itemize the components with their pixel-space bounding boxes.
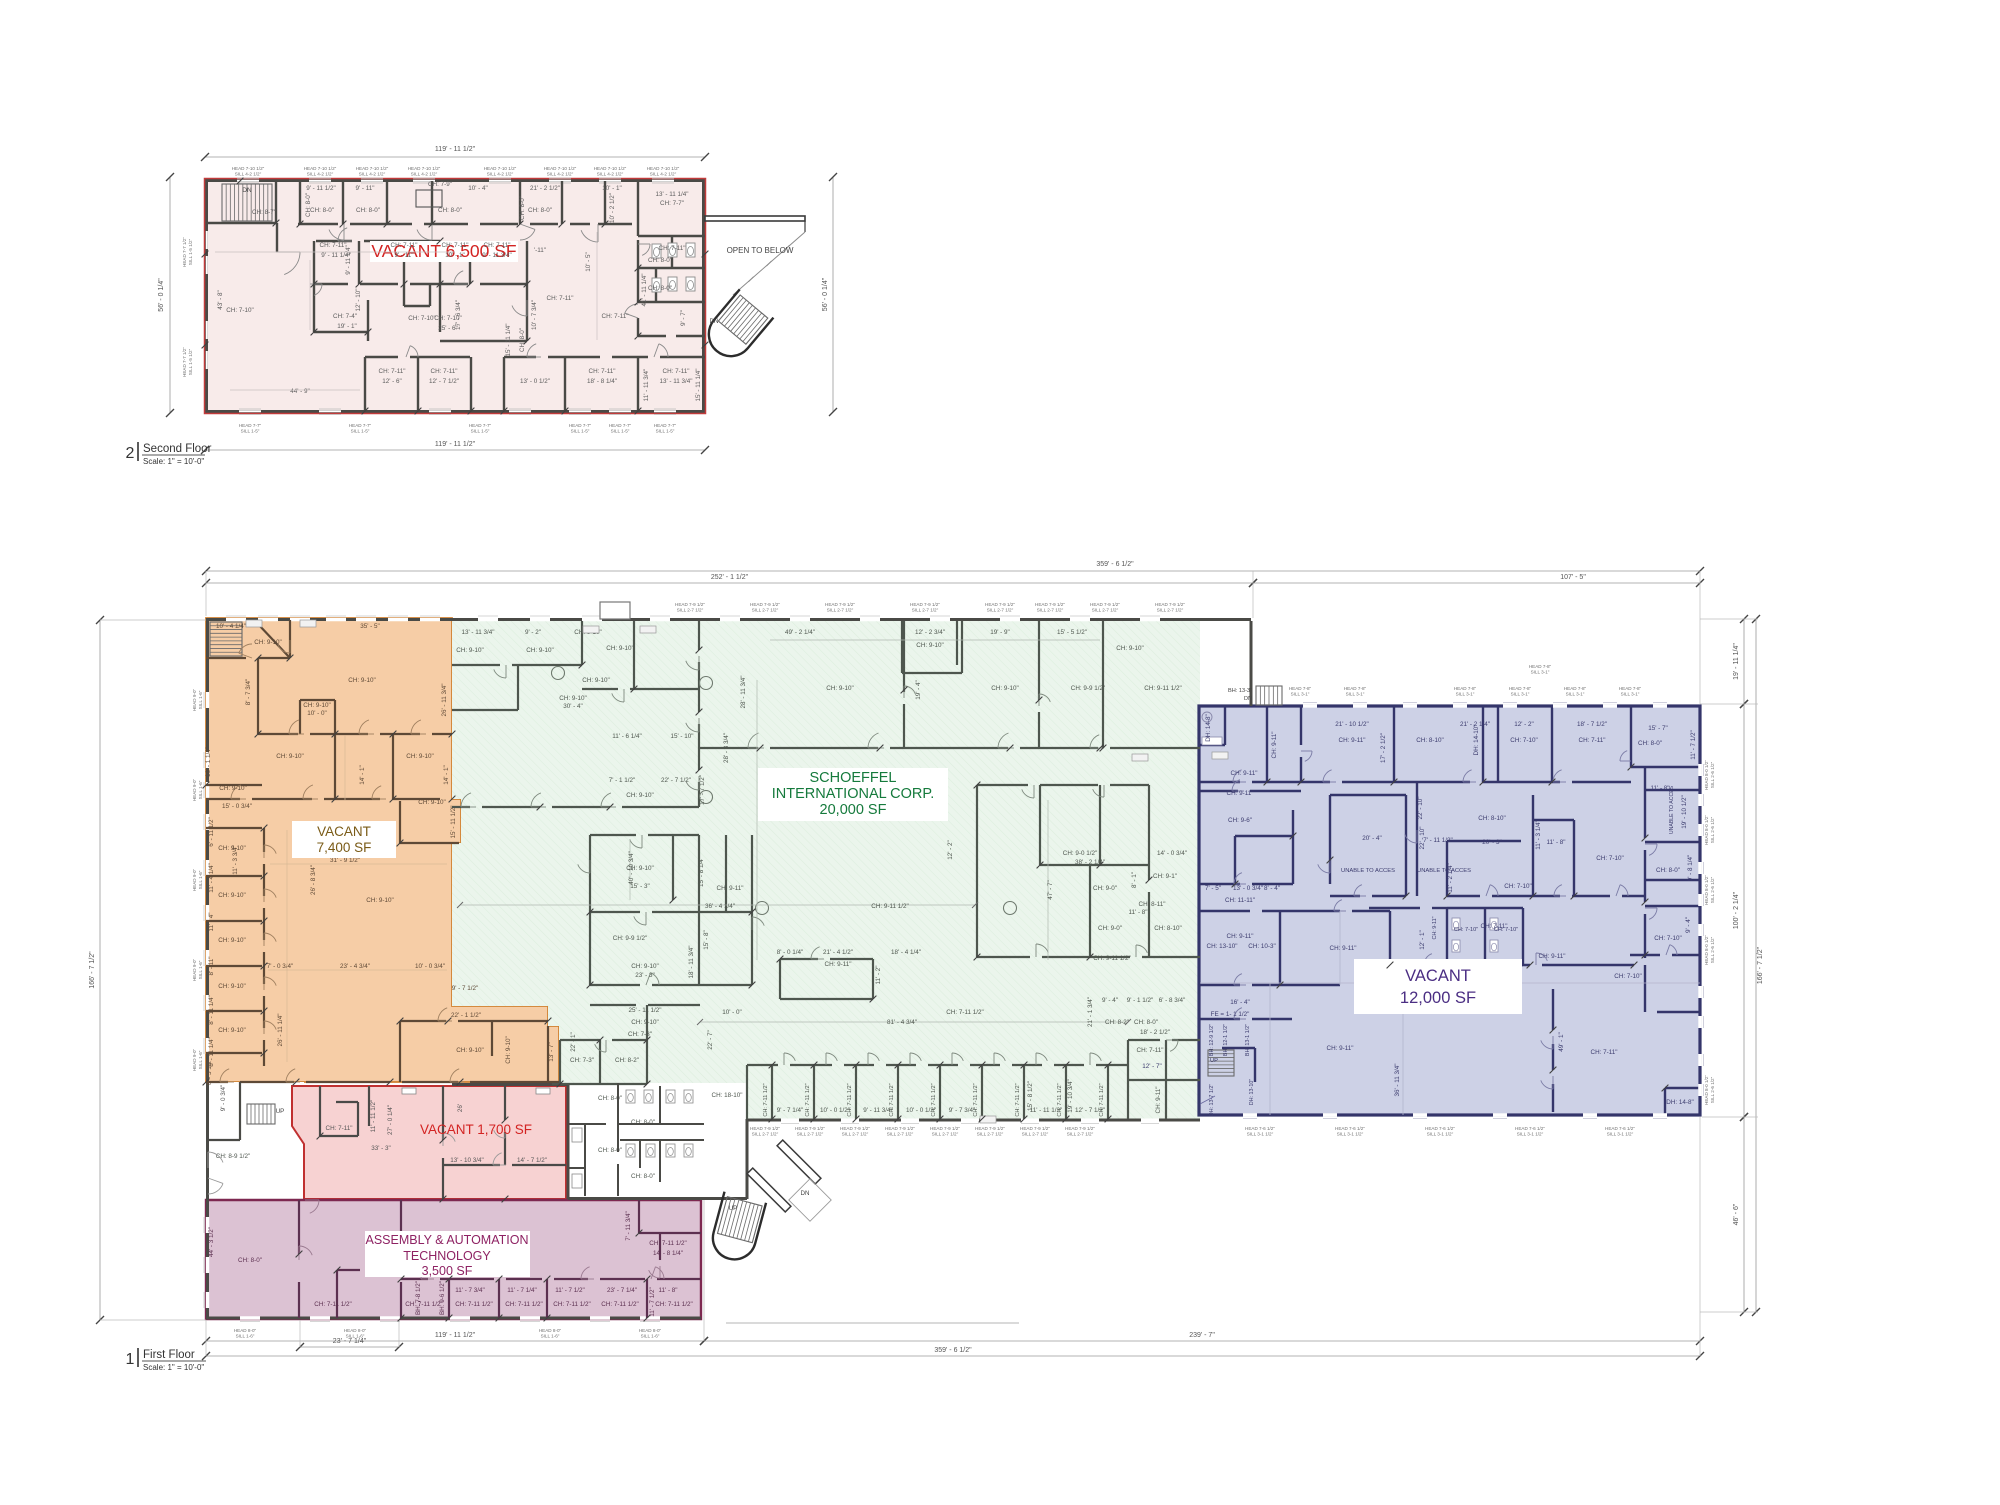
svg-text:9' - 2": 9' - 2" (525, 629, 541, 636)
svg-text:HEAD 7-6 1/2": HEAD 7-6 1/2" (1335, 1126, 1365, 1131)
svg-text:11' - 7 1/2": 11' - 7 1/2" (649, 1287, 656, 1317)
svg-text:DH: 14-8": DH: 14-8" (1205, 714, 1212, 741)
svg-text:15' - 11 1/4": 15' - 11 1/4" (695, 368, 702, 401)
svg-text:CH: 7-11 1/2": CH: 7-11 1/2" (847, 1083, 853, 1116)
svg-text:CH: 7-10": CH: 7-10" (1494, 927, 1518, 933)
svg-text:7' - 5": 7' - 5" (1205, 885, 1221, 892)
svg-text:CH: 7-11 1/2": CH: 7-11 1/2" (655, 1301, 692, 1308)
svg-text:8' - 7 3/4": 8' - 7 3/4" (245, 679, 252, 706)
svg-text:17' - 2 1/2": 17' - 2 1/2" (1380, 733, 1387, 763)
svg-text:UP: UP (1210, 1058, 1218, 1064)
svg-text:SILL 2-7 1/2": SILL 2-7 1/2" (987, 607, 1014, 612)
svg-text:14' - 1": 14' - 1" (443, 765, 450, 785)
svg-text:36' - 11 3/4": 36' - 11 3/4" (1394, 1063, 1401, 1096)
svg-text:BH: 13-3": BH: 13-3" (1228, 688, 1252, 694)
svg-text:SILL 3-1": SILL 3-1" (1531, 669, 1550, 674)
svg-text:SILL 3-1": SILL 3-1" (1291, 691, 1310, 696)
svg-text:HEAD 7-10 1/2": HEAD 7-10 1/2" (356, 166, 389, 171)
svg-text:CH: 9-11": CH: 9-11" (1539, 953, 1566, 960)
svg-text:HEAD 7-9 1/2": HEAD 7-9 1/2" (825, 602, 855, 607)
svg-text:8' - 11 1/4": 8' - 11 1/4" (208, 995, 215, 1025)
svg-text:DN: DN (1244, 696, 1252, 702)
svg-text:13' - 0 3/4": 13' - 0 3/4" (1233, 885, 1263, 892)
svg-text:359' - 6 1/2": 359' - 6 1/2" (934, 1347, 972, 1354)
svg-text:30' - 4": 30' - 4" (563, 703, 583, 710)
svg-text:11' - 8": 11' - 8" (658, 1287, 677, 1294)
svg-text:44' - 9": 44' - 9" (290, 388, 310, 395)
svg-text:HEAD 9-0": HEAD 9-0" (192, 958, 197, 981)
svg-text:10' - 4": 10' - 4" (468, 185, 488, 192)
svg-text:14' - 0 3/4": 14' - 0 3/4" (1157, 850, 1187, 857)
svg-text:9' - 11": 9' - 11" (355, 185, 374, 192)
svg-text:49' - 1": 49' - 1" (1558, 1032, 1565, 1052)
svg-text:CH: 9-11": CH: 9-11" (1330, 945, 1357, 952)
svg-text:CH: 9-10": CH: 9-10" (218, 892, 245, 899)
svg-text:SILL 1-5": SILL 1-5" (351, 428, 370, 433)
svg-text:DH: 14-8": DH: 14-8" (1666, 1099, 1693, 1106)
svg-text:CH: 7-11 1/2": CH: 7-11 1/2" (405, 1301, 442, 1308)
svg-text:SCHOEFFEL: SCHOEFFEL (809, 770, 896, 786)
svg-text:239' - 7": 239' - 7" (1189, 1332, 1215, 1339)
svg-text:CH: 9-11": CH: 9-11" (1231, 770, 1258, 777)
svg-text:8' - 4": 8' - 4" (1264, 885, 1280, 892)
svg-text:166' - 7 1/2": 166' - 7 1/2" (1757, 946, 1764, 984)
svg-text:12' - 2 3/4": 12' - 2 3/4" (915, 629, 945, 636)
svg-text:HEAD 7-9 1/2": HEAD 7-9 1/2" (885, 1126, 915, 1131)
svg-text:SILL 2-7 1/2": SILL 2-7 1/2" (752, 1131, 779, 1136)
svg-text:CH: 8-0": CH: 8-0" (648, 285, 672, 292)
svg-text:23' - 3": 23' - 3" (635, 972, 655, 979)
svg-text:CH: 7-11": CH: 7-11" (431, 368, 458, 375)
svg-text:17' - 6 3/4": 17' - 6 3/4" (455, 300, 462, 330)
svg-text:15' - 0 3/4": 15' - 0 3/4" (222, 803, 252, 810)
svg-text:17' - 7 1/2": 17' - 7 1/2" (699, 775, 706, 805)
svg-text:SILL 1-5": SILL 1-5" (656, 428, 675, 433)
svg-text:BH: 9-6 1/2": BH: 9-6 1/2" (439, 1281, 446, 1315)
svg-text:SILL 1-5": SILL 1-5" (571, 428, 590, 433)
svg-text:CH: 7-11 1/2": CH: 7-11 1/2" (553, 1301, 590, 1308)
svg-text:HEAD 9-0": HEAD 9-0" (192, 778, 197, 801)
svg-text:VACANT: VACANT (1405, 967, 1471, 985)
svg-text:12' - 2": 12' - 2" (1514, 721, 1534, 728)
svg-text:11' - 11 3/4": 11' - 11 3/4" (643, 369, 650, 402)
svg-text:CH: 9-10": CH: 9-10" (276, 753, 303, 760)
svg-text:CH: 11-11": CH: 11-11" (1225, 897, 1255, 904)
svg-text:CH: 9-0 1/2": CH: 9-0 1/2" (1063, 850, 1097, 857)
svg-text:CH: 8-0": CH: 8-0" (528, 207, 552, 214)
svg-text:CH: 7-11 1/2": CH: 7-11 1/2" (763, 1083, 769, 1116)
svg-text:DH: 13-7 1/2": DH: 13-7 1/2" (1209, 1084, 1215, 1117)
svg-text:20,000 SF: 20,000 SF (820, 802, 887, 818)
svg-text:HEAD 7-9 1/2": HEAD 7-9 1/2" (1065, 1126, 1095, 1131)
svg-text:41' - 11 1/4": 41' - 11 1/4" (641, 273, 648, 306)
svg-text:6' - 8 3/4": 6' - 8 3/4" (1159, 997, 1186, 1004)
svg-text:SILL 1-5": SILL 1-5" (611, 428, 630, 433)
svg-text:CH: 7-11 1/2": CH: 7-11 1/2" (973, 1083, 979, 1116)
svg-text:8' - 0 1/4": 8' - 0 1/4" (777, 949, 804, 956)
svg-text:7' - 0 3/4": 7' - 0 3/4" (267, 963, 294, 970)
svg-text:HEAD 7-8": HEAD 7-8" (1529, 664, 1552, 669)
svg-text:HEAD 7-9 1/2": HEAD 7-9 1/2" (750, 602, 780, 607)
svg-text:SILL 2-7 1/2": SILL 2-7 1/2" (977, 1131, 1004, 1136)
svg-text:7' - 11 3/4": 7' - 11 3/4" (625, 1211, 632, 1241)
svg-text:10' - 0": 10' - 0" (722, 1009, 742, 1016)
svg-text:HEAD 7-9 1/2": HEAD 7-9 1/2" (975, 1126, 1005, 1131)
svg-text:CH: 7-11": CH: 7-11" (659, 245, 686, 252)
svg-text:CH: 7-11": CH: 7-11" (547, 295, 574, 302)
svg-text:CH: 7-11": CH: 7-11" (589, 368, 616, 375)
svg-text:CH: 8-0": CH: 8-0" (438, 207, 462, 214)
svg-text:11' - 7 1/2": 11' - 7 1/2" (555, 1287, 585, 1294)
svg-text:SILL 4-2 1/2": SILL 4-2 1/2" (307, 171, 334, 176)
svg-text:HEAD 7-7": HEAD 7-7" (609, 423, 632, 428)
svg-text:CH: 9-10": CH: 9-10" (218, 983, 245, 990)
svg-text:15' - 5 1/2": 15' - 5 1/2" (1057, 629, 1087, 636)
svg-text:15' - 8": 15' - 8" (703, 930, 710, 950)
svg-text:HEAD 7-7": HEAD 7-7" (569, 423, 592, 428)
svg-text:SILL 1-6": SILL 1-6" (641, 1333, 660, 1338)
svg-text:CH: 8-0": CH: 8-0" (648, 257, 672, 264)
svg-text:HEAD 7-8": HEAD 7-8" (1619, 686, 1642, 691)
svg-text:18' - 2 1/2": 18' - 2 1/2" (1140, 1029, 1170, 1036)
svg-text:13' - 11 3/4": 13' - 11 3/4" (461, 629, 494, 636)
svg-text:10' - 0 1/2": 10' - 0 1/2" (820, 1107, 850, 1114)
svg-text:UNABLE TO ACCES: UNABLE TO ACCES (1341, 868, 1395, 874)
svg-text:CH: 7-7": CH: 7-7" (660, 200, 684, 207)
svg-text:CH: 7-10": CH: 7-10" (1504, 883, 1531, 890)
svg-text:SILL 2-7 1/2": SILL 2-7 1/2" (797, 1131, 824, 1136)
svg-text:HEAD 7-10 1/2": HEAD 7-10 1/2" (544, 166, 577, 171)
svg-text:Scale: 1" = 10'-0": Scale: 1" = 10'-0" (143, 457, 204, 466)
svg-text:33' - 3": 33' - 3" (371, 1145, 391, 1152)
svg-text:CH: 9-11": CH: 9-11" (1432, 916, 1438, 939)
svg-text:CH: 8-0": CH: 8-0" (356, 207, 380, 214)
svg-text:11' - 3 3/4": 11' - 3 3/4" (232, 845, 239, 875)
svg-text:23' - 7 1/4": 23' - 7 1/4" (333, 1338, 367, 1345)
svg-text:11' - 4": 11' - 4" (208, 912, 215, 931)
svg-text:CH: 8-0": CH: 8-0" (305, 193, 312, 217)
svg-text:CH: 8-11": CH: 8-11" (1139, 901, 1166, 908)
svg-text:12' - 10": 12' - 10" (355, 288, 362, 311)
svg-text:10' - 0 3/4": 10' - 0 3/4" (415, 963, 445, 970)
svg-text:CH: 18-10": CH: 18-10" (712, 1092, 743, 1099)
svg-text:'-11": '-11" (534, 247, 546, 254)
svg-text:7' - 11 1/2": 7' - 11 1/2" (1423, 837, 1453, 844)
svg-text:UP: UP (276, 1108, 285, 1115)
svg-text:27' - 0 1/4": 27' - 0 1/4" (387, 1105, 394, 1135)
svg-text:CH: 9-10": CH: 9-10" (626, 792, 653, 799)
svg-text:HEAD 9-0": HEAD 9-0" (192, 688, 197, 711)
svg-text:FE = 1- 1 1/2": FE = 1- 1 1/2" (1211, 1011, 1250, 1018)
svg-text:BH: 7-8 1/2": BH: 7-8 1/2" (415, 1281, 422, 1315)
svg-text:CH: 8-10": CH: 8-10" (1478, 815, 1505, 822)
svg-text:CH: 7-3": CH: 7-3" (570, 1057, 594, 1064)
svg-text:19' - 1": 19' - 1" (337, 323, 357, 330)
svg-text:14' - 1": 14' - 1" (359, 765, 366, 785)
svg-text:SILL 1-6": SILL 1-6" (236, 1333, 255, 1338)
svg-text:HEAD 7-7 1/2": HEAD 7-7 1/2" (182, 347, 187, 377)
svg-text:HEAD 8-0 1/2": HEAD 8-0 1/2" (1704, 935, 1709, 965)
svg-text:First Floor: First Floor (143, 1349, 195, 1361)
svg-text:HEAD 7-9 1/2": HEAD 7-9 1/2" (840, 1126, 870, 1131)
svg-text:22' - 1 1/2": 22' - 1 1/2" (451, 1012, 481, 1019)
svg-text:CH: 7-10": CH: 7-10" (226, 307, 253, 314)
svg-text:11' - 7 3/4": 11' - 7 3/4" (455, 1287, 485, 1294)
svg-text:SILL 3-1": SILL 3-1" (1621, 691, 1640, 696)
svg-text:18' - 7 1/2": 18' - 7 1/2" (1577, 721, 1607, 728)
svg-text:CH: 7-11": CH: 7-11" (379, 368, 406, 375)
svg-text:CH: 9-10": CH: 9-10" (254, 639, 281, 646)
svg-text:SILL 2-7 1/2": SILL 2-7 1/2" (1037, 607, 1064, 612)
svg-text:SILL 3-1 1/2": SILL 3-1 1/2" (1427, 1131, 1454, 1136)
svg-text:11' - 3 1/4": 11' - 3 1/4" (1535, 820, 1542, 850)
svg-text:CH: 7-11": CH: 7-11" (320, 242, 347, 249)
svg-text:19' - 10 3/4": 19' - 10 3/4" (1067, 1079, 1074, 1113)
svg-text:SILL 1-5": SILL 1-5" (471, 428, 490, 433)
svg-text:23' - 7 1/4": 23' - 7 1/4" (607, 1287, 637, 1294)
svg-text:10' - 5": 10' - 5" (585, 252, 592, 272)
svg-text:HEAD 7-10 1/2": HEAD 7-10 1/2" (594, 166, 627, 171)
svg-text:CH: 8-0": CH: 8-0" (1656, 867, 1680, 874)
svg-text:HEAD 7-10 1/2": HEAD 7-10 1/2" (647, 166, 680, 171)
svg-text:HEAD 8-0": HEAD 8-0" (234, 1328, 257, 1333)
svg-text:CH: 7-11": CH: 7-11" (602, 313, 629, 320)
svg-text:CH: 9-10": CH: 9-10" (406, 753, 433, 760)
svg-text:10' - 1": 10' - 1" (602, 185, 622, 192)
svg-text:20' - 3": 20' - 3" (1482, 839, 1502, 846)
svg-text:HEAD 8-0": HEAD 8-0" (539, 1328, 562, 1333)
svg-text:14' - 8 1/4": 14' - 8 1/4" (653, 1250, 683, 1257)
svg-text:SILL 4-2 1/2": SILL 4-2 1/2" (597, 171, 624, 176)
svg-text:9' - 7 3/4": 9' - 7 3/4" (949, 1107, 976, 1114)
svg-text:HEAD 7-7": HEAD 7-7" (469, 423, 492, 428)
svg-text:CH: 7-10": CH: 7-10" (408, 315, 435, 322)
svg-text:CH: 9-11 1/2": CH: 9-11 1/2" (871, 903, 908, 910)
svg-text:CH: 7-11": CH: 7-11" (1591, 1049, 1618, 1056)
svg-text:9' - 11 3/4": 9' - 11 3/4" (482, 252, 512, 259)
svg-text:9' - 7": 9' - 7" (680, 310, 687, 326)
svg-text:ASSEMBLY & AUTOMATION: ASSEMBLY & AUTOMATION (365, 1233, 528, 1247)
svg-text:CH: 9-10": CH: 9-10" (606, 645, 633, 652)
svg-text:CH: 7-11 1/2": CH: 7-11 1/2" (601, 1301, 638, 1308)
svg-text:HEAD 7-7": HEAD 7-7" (654, 423, 677, 428)
svg-text:13' - 7": 13' - 7" (548, 1042, 555, 1062)
svg-text:11' - 7 1/2": 11' - 7 1/2" (1690, 730, 1697, 760)
svg-text:CH: 9-11": CH: 9-11" (825, 961, 852, 968)
svg-text:10' - 2 1/2": 10' - 2 1/2" (609, 193, 616, 223)
svg-text:CH: 13-10": CH: 13-10" (1207, 943, 1238, 950)
svg-text:10' - 4 1/4": 10' - 4 1/4" (216, 623, 246, 630)
svg-text:44' - 3 1/2": 44' - 3 1/2" (208, 1227, 215, 1257)
svg-text:14' - 7 1/2": 14' - 7 1/2" (517, 1157, 547, 1164)
svg-text:22' - 1": 22' - 1" (570, 1032, 577, 1052)
svg-text:CH: 9-11": CH: 9-11" (1227, 790, 1254, 797)
svg-text:7' - 1 1/2": 7' - 1 1/2" (609, 777, 636, 784)
svg-text:UNABLE TO ACCES: UNABLE TO ACCES (1669, 785, 1675, 834)
svg-text:HEAD 7-9 1/2": HEAD 7-9 1/2" (910, 602, 940, 607)
svg-text:22' - 10": 22' - 10" (1417, 796, 1424, 819)
svg-text:CH: 7-11": CH: 7-11" (391, 242, 418, 249)
svg-text:9' - 8 1/4": 9' - 8 1/4" (1687, 855, 1694, 882)
svg-text:8' - 11": 8' - 11" (208, 956, 215, 975)
svg-text:CH: 7-11": CH: 7-11" (663, 368, 690, 375)
svg-text:DN: DN (801, 1190, 810, 1197)
svg-text:CH: 9-10": CH: 9-10" (916, 642, 943, 649)
svg-text:11' - 2": 11' - 2" (875, 965, 882, 984)
svg-text:CH: 9-10": CH: 9-10" (366, 897, 393, 904)
svg-text:SILL 2-7 1/2": SILL 2-7 1/2" (1022, 1131, 1049, 1136)
svg-text:CH: 9-10": CH: 9-10" (348, 677, 375, 684)
svg-text:CH: 8-2": CH: 8-2" (1105, 1019, 1129, 1026)
svg-text:CH: 9-11": CH: 9-11" (1339, 737, 1366, 744)
svg-text:CH: 9-11 1/2": CH: 9-11 1/2" (1144, 685, 1181, 692)
svg-text:HEAD 7-9 1/2": HEAD 7-9 1/2" (795, 1126, 825, 1131)
svg-text:CH: 8-7": CH: 8-7" (252, 209, 276, 216)
svg-text:8' - 1": 8' - 1" (1131, 872, 1138, 888)
svg-text:21' - 4 1/2": 21' - 4 1/2" (823, 949, 853, 956)
svg-text:SILL 1-6": SILL 1-6" (198, 690, 203, 709)
svg-text:DN: DN (710, 318, 719, 325)
svg-text:CH: 8-2": CH: 8-2" (615, 1057, 639, 1064)
svg-text:SILL 3-1 1/2": SILL 3-1 1/2" (1607, 1131, 1634, 1136)
svg-text:15' - 10": 15' - 10" (670, 733, 693, 740)
svg-text:HEAD 7-9 1/2": HEAD 7-9 1/2" (1035, 602, 1065, 607)
svg-text:12' - 7 1/2": 12' - 7 1/2" (429, 378, 459, 385)
svg-text:HEAD 7-10 1/2": HEAD 7-10 1/2" (304, 166, 337, 171)
svg-text:CH: 9-10": CH: 9-10" (219, 785, 246, 792)
svg-text:BH: 12-1 1/2": BH: 12-1 1/2" (1223, 1024, 1229, 1056)
svg-text:26' - 8 3/4": 26' - 8 3/4" (310, 865, 317, 895)
svg-text:2: 2 (126, 445, 135, 462)
svg-text:21' - 1 3/4": 21' - 1 3/4" (1087, 997, 1094, 1027)
svg-text:119' - 11 1/2": 119' - 11 1/2" (435, 1332, 476, 1339)
svg-text:359' - 6 1/2": 359' - 6 1/2" (1096, 561, 1134, 568)
svg-text:16' - 1 1/4": 16' - 1 1/4" (205, 747, 212, 777)
svg-text:HEAD 8-0 1/2": HEAD 8-0 1/2" (1704, 1075, 1709, 1105)
svg-text:CH: 8-0": CH: 8-0" (310, 207, 334, 214)
svg-text:15' - 11 1/2": 15' - 11 1/2" (450, 805, 457, 838)
svg-text:12,000 SF: 12,000 SF (1400, 989, 1476, 1007)
svg-text:16' - 4": 16' - 4" (1230, 999, 1250, 1006)
svg-text:CH: 8-0": CH: 8-0" (238, 1257, 262, 1264)
svg-text:CH: 9-10": CH: 9-10" (631, 1019, 658, 1026)
svg-text:SILL 1-6": SILL 1-6" (198, 1050, 203, 1069)
svg-text:CH: 9-10": CH: 9-10" (826, 685, 853, 692)
svg-text:36' - 4 1/4": 36' - 4 1/4" (705, 903, 735, 910)
svg-text:CH: 7-10": CH: 7-10" (1510, 737, 1537, 744)
svg-text:40' - 10 3/4": 40' - 10 3/4" (628, 851, 635, 885)
svg-text:OPEN TO BELOW: OPEN TO BELOW (727, 246, 794, 255)
svg-text:23' - 4 3/4": 23' - 4 3/4" (340, 963, 370, 970)
svg-text:CH: 7-11 1/2": CH: 7-11 1/2" (1099, 1083, 1105, 1116)
svg-text:HEAD 7-10 1/2": HEAD 7-10 1/2" (232, 166, 265, 171)
svg-text:119' - 11 1/2": 119' - 11 1/2" (435, 441, 476, 448)
svg-text:HEAD 7-8": HEAD 7-8" (1564, 686, 1587, 691)
svg-text:CH: 7-4": CH: 7-4" (333, 313, 357, 320)
svg-text:VACANT: VACANT (317, 824, 371, 839)
svg-text:HEAD 7-7 1/2": HEAD 7-7 1/2" (182, 237, 187, 267)
svg-text:SILL 2-6 1/2": SILL 2-6 1/2" (1710, 936, 1715, 963)
svg-text:SILL 2-7 1/2": SILL 2-7 1/2" (1157, 607, 1184, 612)
svg-text:UNABLE TO ACCES: UNABLE TO ACCES (1417, 868, 1471, 874)
svg-text:12' - 7": 12' - 7" (1142, 1063, 1162, 1070)
svg-text:15' - 7": 15' - 7" (1648, 725, 1668, 732)
svg-text:19' - 11 1/4": 19' - 11 1/4" (1733, 643, 1740, 680)
svg-text:11' - 11 1/2": 11' - 11 1/2" (370, 1100, 377, 1133)
svg-text:13' - 11 1/4": 13' - 11 1/4" (655, 191, 688, 198)
svg-text:HEAD 8-0": HEAD 8-0" (344, 1328, 367, 1333)
svg-text:CH: 7-11 1/2": CH: 7-11 1/2" (931, 1083, 937, 1116)
svg-text:HEAD 9-0": HEAD 9-0" (192, 868, 197, 891)
svg-text:HEAD 7-9 1/2": HEAD 7-9 1/2" (1020, 1126, 1050, 1131)
svg-text:11' - 7 1/4": 11' - 7 1/4" (507, 1287, 537, 1294)
svg-text:CH: 7-11 1/2": CH: 7-11 1/2" (1057, 1083, 1063, 1116)
svg-text:CH: 7-11 1/2": CH: 7-11 1/2" (1015, 1083, 1021, 1116)
svg-text:CH: 7-11": CH: 7-11" (442, 242, 469, 249)
svg-text:9' - 1 1/2": 9' - 1 1/2" (1127, 997, 1154, 1004)
svg-text:CH: 10-3": CH: 10-3" (1248, 943, 1275, 950)
svg-text:DH: 13-10": DH: 13-10" (1249, 1079, 1255, 1106)
svg-text:SILL 3-1 1/2": SILL 3-1 1/2" (1247, 1131, 1274, 1136)
svg-text:CH: 9-11": CH: 9-11" (1227, 933, 1254, 940)
svg-text:12' - 1": 12' - 1" (1419, 930, 1426, 950)
svg-text:19' - 10 1/2": 19' - 10 1/2" (1681, 795, 1688, 829)
svg-text:46' - 6": 46' - 6" (1733, 1203, 1740, 1225)
svg-text:CH: 7-11 1/2": CH: 7-11 1/2" (455, 1301, 492, 1308)
svg-text:SILL 2-7 1/2": SILL 2-7 1/2" (1092, 607, 1119, 612)
svg-text:47' - 7": 47' - 7" (1047, 880, 1054, 900)
svg-text:HEAD 7-9 1/2": HEAD 7-9 1/2" (1090, 602, 1120, 607)
svg-text:26' - 11 1/4": 26' - 11 1/4" (277, 1013, 284, 1046)
svg-text:SILL 2-7 1/2": SILL 2-7 1/2" (932, 1131, 959, 1136)
svg-text:CH: 9-10": CH: 9-10" (631, 963, 658, 970)
svg-text:HEAD 7-8": HEAD 7-8" (1289, 686, 1312, 691)
svg-text:HEAD 7-10 1/2": HEAD 7-10 1/2" (408, 166, 441, 171)
svg-text:CH: 7-11": CH: 7-11" (1579, 737, 1606, 744)
svg-text:12' - 2": 12' - 2" (947, 840, 954, 860)
svg-text:SILL 2-7 1/2": SILL 2-7 1/2" (912, 607, 939, 612)
svg-text:VACANT 1,700 SF: VACANT 1,700 SF (420, 1122, 532, 1137)
svg-text:100' - 2 1/4": 100' - 2 1/4" (1733, 891, 1740, 929)
svg-text:9' - 4": 9' - 4" (1685, 917, 1692, 933)
svg-text:18' - 4 1/4": 18' - 4 1/4" (891, 949, 921, 956)
svg-text:CH: 7-11 1/2": CH: 7-11 1/2" (889, 1083, 895, 1116)
svg-text:SILL 3-1": SILL 3-1" (1346, 691, 1365, 696)
svg-text:22' - 10": 22' - 10" (1419, 826, 1426, 849)
svg-text:3,500 SF: 3,500 SF (422, 1264, 473, 1278)
svg-text:SILL 3-1 1/2": SILL 3-1 1/2" (1337, 1131, 1364, 1136)
svg-text:HEAD 7-6 1/2": HEAD 7-6 1/2" (1515, 1126, 1545, 1131)
svg-text:HEAD 7-9 1/2": HEAD 7-9 1/2" (675, 602, 705, 607)
svg-text:28' - 3 3/4": 28' - 3 3/4" (723, 733, 730, 763)
svg-text:HEAD 7-6 1/2": HEAD 7-6 1/2" (1605, 1126, 1635, 1131)
svg-text:9' - 7 1/2": 9' - 7 1/2" (452, 985, 479, 992)
svg-text:119' - 11 1/2": 119' - 11 1/2" (435, 146, 476, 153)
svg-text:9' - 4": 9' - 4" (1102, 997, 1118, 1004)
svg-text:CH: 7-11 1/2": CH: 7-11 1/2" (649, 1240, 686, 1247)
svg-text:SILL 2-6 1/2": SILL 2-6 1/2" (1710, 876, 1715, 903)
svg-text:22' - 7 1/2": 22' - 7 1/2" (661, 777, 691, 784)
svg-text:SILL 3-1": SILL 3-1" (1566, 691, 1585, 696)
svg-text:Second Floor: Second Floor (143, 443, 212, 455)
svg-text:SILL 1-6": SILL 1-6" (541, 1333, 560, 1338)
svg-text:CH: 9-11": CH: 9-11" (717, 885, 744, 892)
svg-text:HEAD 7-8": HEAD 7-8" (1509, 686, 1532, 691)
svg-text:HEAD 9-0": HEAD 9-0" (192, 1048, 197, 1071)
svg-text:13' - 10 3/4": 13' - 10 3/4" (450, 1157, 484, 1164)
svg-text:INTERNATIONAL CORP.: INTERNATIONAL CORP. (772, 786, 934, 802)
svg-text:22' - 7": 22' - 7" (707, 1030, 714, 1050)
